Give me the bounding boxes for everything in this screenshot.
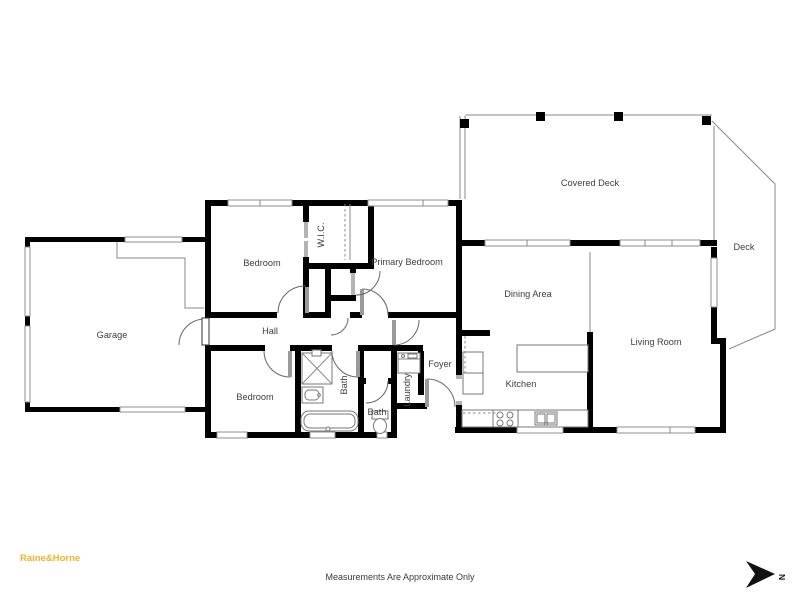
north-label: N xyxy=(777,574,787,580)
bedroom-upper-door-arc xyxy=(278,286,305,313)
room-label-living-room: Living Room xyxy=(630,337,681,347)
room-label-bedroom-upper: Bedroom xyxy=(243,258,281,268)
room-label-foyer: Foyer xyxy=(428,359,452,369)
bath-second-door-arc xyxy=(366,381,388,403)
north-arrow-icon xyxy=(746,561,775,588)
stove-icon xyxy=(493,410,518,427)
primary-closet-door-arc xyxy=(356,271,380,295)
north-compass: N xyxy=(746,561,787,588)
room-label-covered-deck: Covered Deck xyxy=(561,178,620,188)
room-label-hall: Hall xyxy=(262,326,278,336)
bath-main-door-arc xyxy=(332,351,358,377)
shower-icon xyxy=(302,350,332,384)
room-label-bath-main: Bath xyxy=(339,376,349,395)
kitchen-counter xyxy=(462,410,588,427)
deck-posts xyxy=(460,112,711,128)
washer-icon xyxy=(398,353,420,373)
room-label-laundry: Laundry xyxy=(402,373,412,407)
room-label-bedroom-lower: Bedroom xyxy=(236,392,274,402)
floorplan-drawing: Garage Bedroom W.I.C. Primary Bedroom Co… xyxy=(0,0,800,600)
walls xyxy=(25,200,726,438)
front-door-arc xyxy=(427,379,455,407)
sink-icon xyxy=(535,412,557,425)
room-label-dining-area: Dining Area xyxy=(504,289,552,299)
room-label-bath-second: Bath xyxy=(368,407,387,417)
garage-door-leaf xyxy=(202,318,209,345)
room-label-wic: W.I.C. xyxy=(316,222,326,247)
garage-door-arc xyxy=(179,319,205,345)
floorplan-page: Garage Bedroom W.I.C. Primary Bedroom Co… xyxy=(0,0,800,600)
fridge-pantry-icon xyxy=(463,352,483,394)
bathtub-icon xyxy=(301,411,358,431)
vanity-sink-icon xyxy=(302,387,323,403)
room-label-kitchen: Kitchen xyxy=(506,379,537,389)
kitchen-island xyxy=(517,345,588,372)
room-label-garage: Garage xyxy=(97,330,128,340)
hall-foyer-door-arc xyxy=(394,320,419,345)
room-label-deck: Deck xyxy=(734,242,755,252)
bedroom-lower-door-arc xyxy=(264,351,290,377)
brand-logo-text: Raine&Horne xyxy=(20,553,80,564)
disclaimer-text: Measurements Are Approximate Only xyxy=(325,572,475,582)
hall-closet-door-arc xyxy=(331,318,348,335)
room-label-primary-bedroom: Primary Bedroom xyxy=(371,257,443,267)
fixtures xyxy=(301,204,588,434)
